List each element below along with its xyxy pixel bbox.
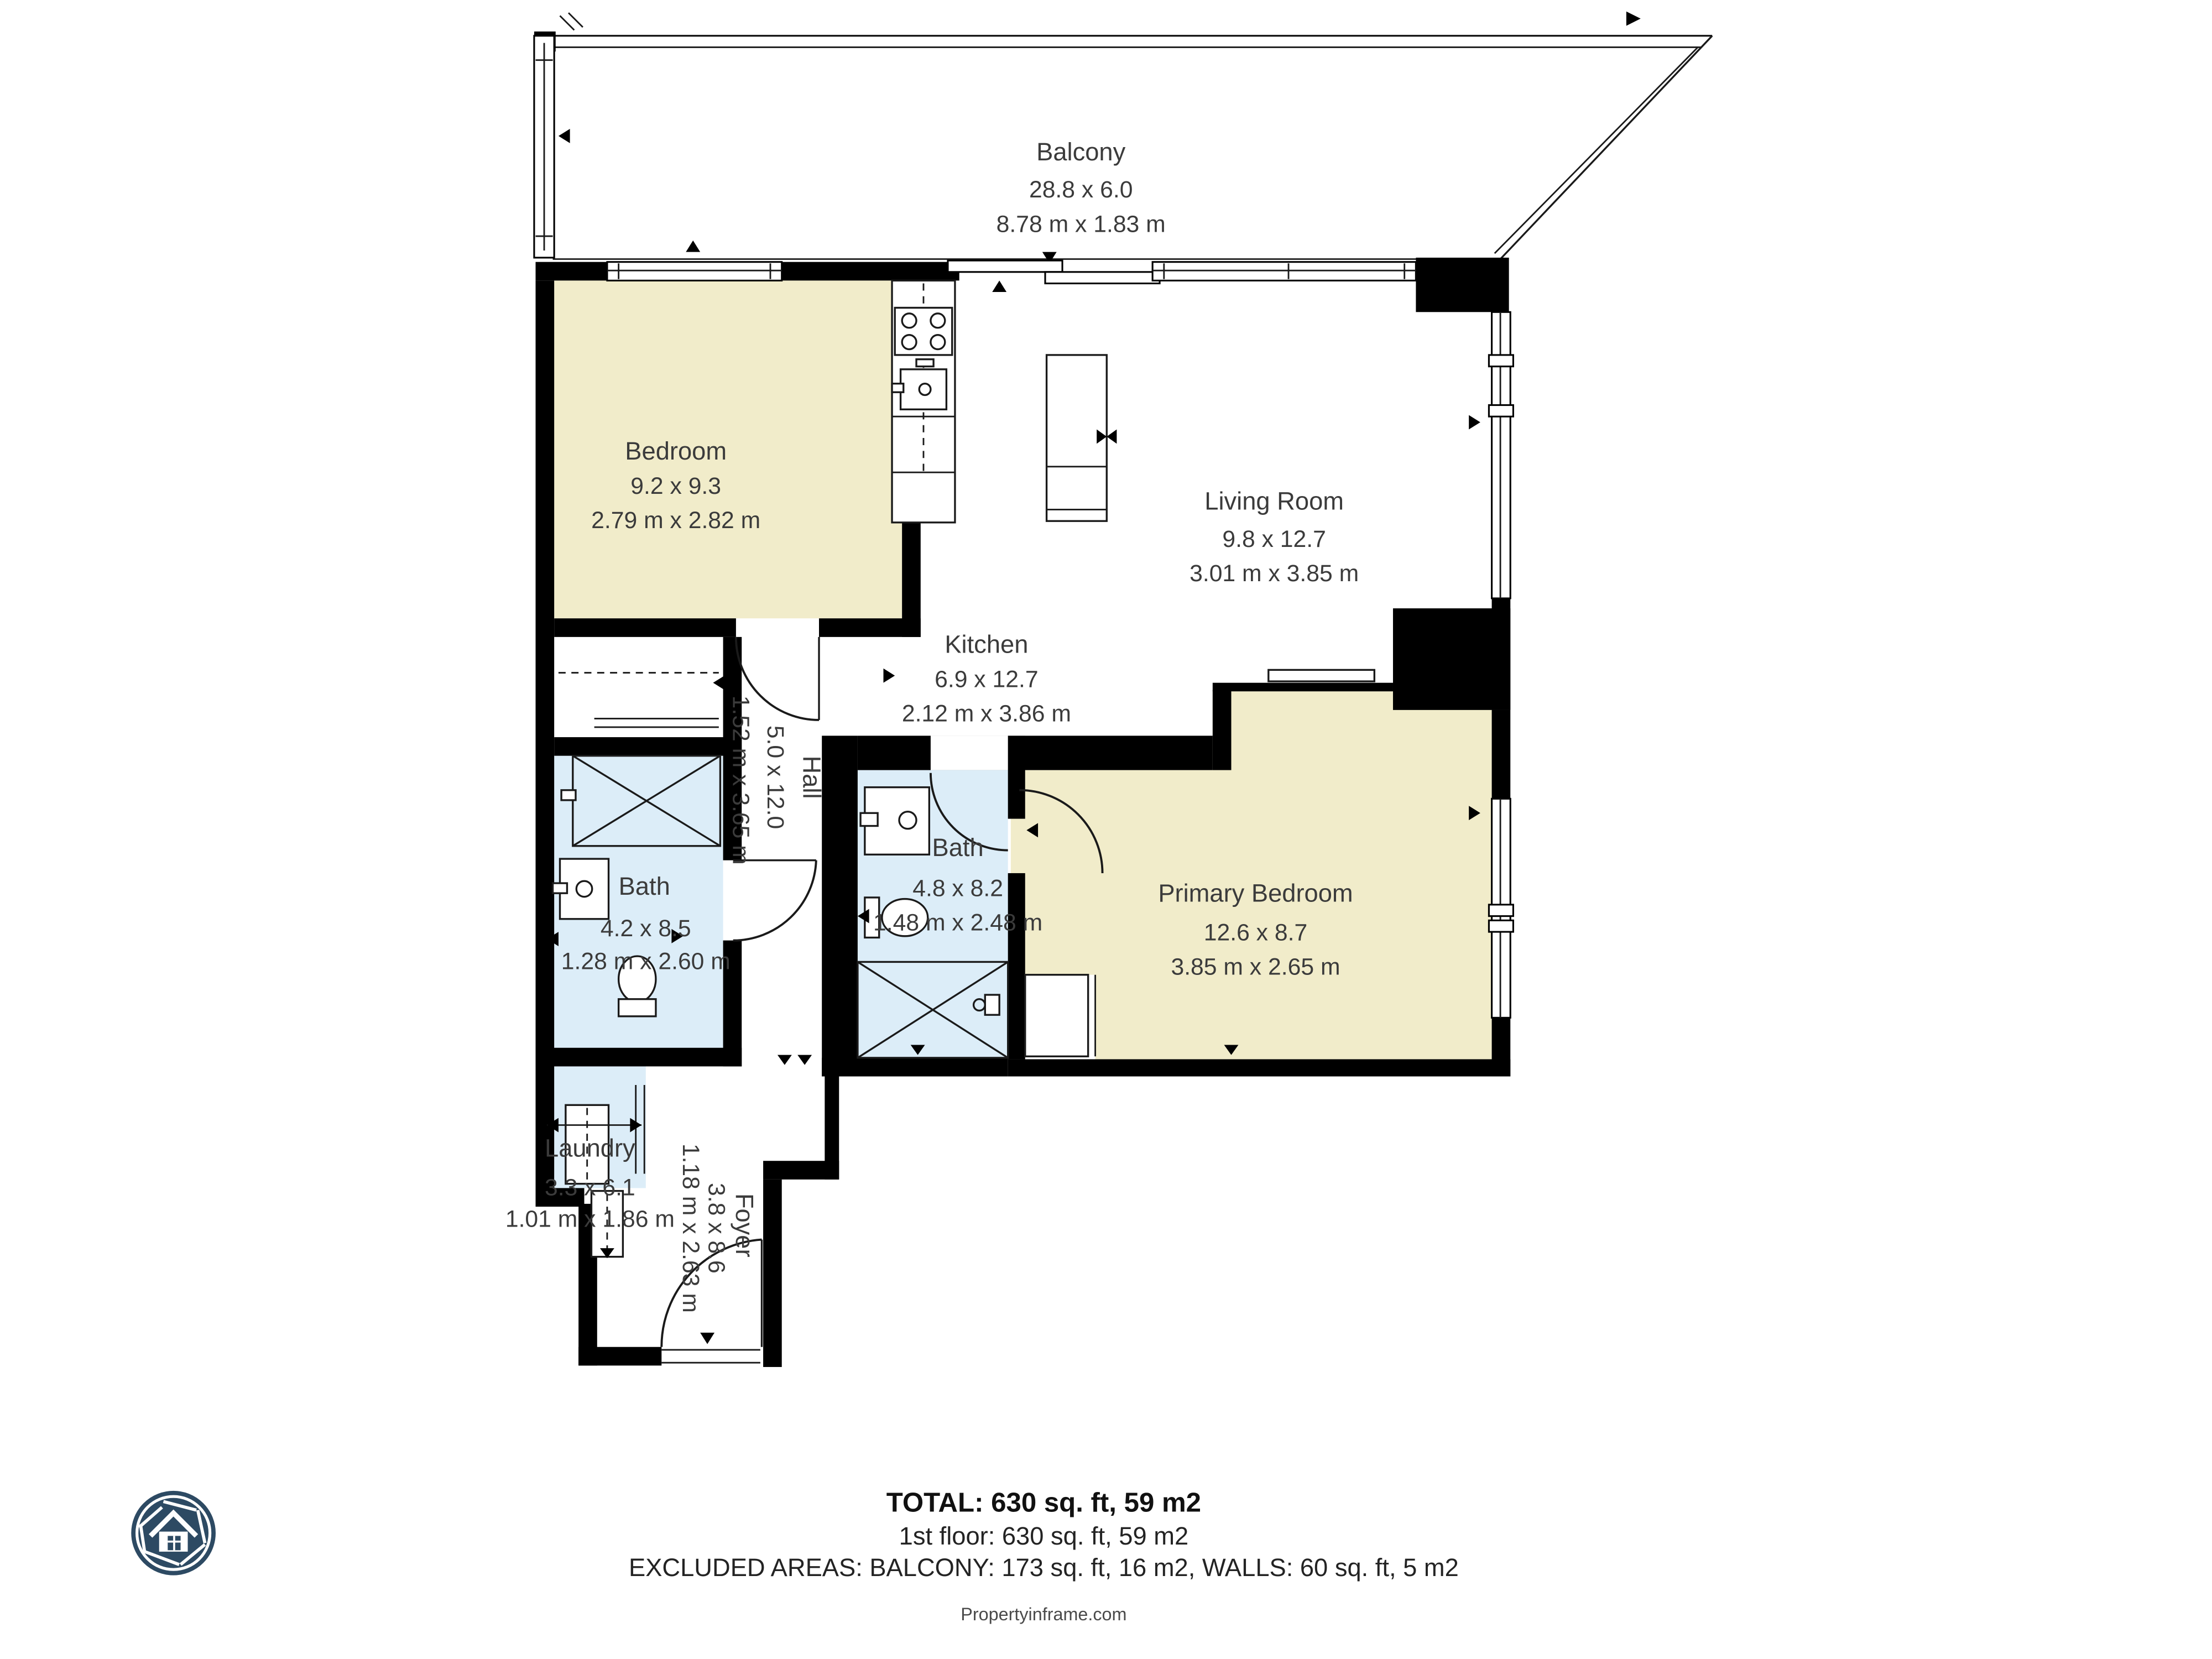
bath-left-door <box>733 860 816 941</box>
propertyinframe-logo-icon <box>133 1493 213 1573</box>
living-right-window <box>1469 312 1513 598</box>
svg-text:3.3 x 6.1: 3.3 x 6.1 <box>545 1174 635 1201</box>
total-area-text: TOTAL: 630 sq. ft, 59 m2 <box>886 1487 1201 1517</box>
room-bedroom-floor <box>554 280 902 618</box>
svg-text:Kitchen: Kitchen <box>945 630 1028 658</box>
svg-text:1.01 m x 1.86 m: 1.01 m x 1.86 m <box>505 1206 675 1232</box>
svg-text:1.48 m x 2.48 m: 1.48 m x 2.48 m <box>873 909 1042 936</box>
arrow-icon <box>883 669 895 683</box>
arrow-icon <box>1626 12 1641 26</box>
floorplan-page: Balcony 28.8 x 6.0 8.78 m x 1.83 m Bedro… <box>0 0 2212 1659</box>
svg-text:12.6 x 8.7: 12.6 x 8.7 <box>1204 920 1308 946</box>
svg-text:9.8 x 12.7: 9.8 x 12.7 <box>1222 526 1326 552</box>
svg-text:2.79 m x 2.82 m: 2.79 m x 2.82 m <box>591 507 760 534</box>
svg-text:28.8 x 6.0: 28.8 x 6.0 <box>1029 176 1133 203</box>
balcony-window <box>534 36 554 258</box>
svg-text:4.8 x 8.2: 4.8 x 8.2 <box>912 875 1003 901</box>
svg-text:1.18 m x 2.63 m: 1.18 m x 2.63 m <box>677 1144 704 1313</box>
svg-text:4.2 x 8.5: 4.2 x 8.5 <box>601 915 691 942</box>
svg-text:3.85 m x 2.65 m: 3.85 m x 2.65 m <box>1171 954 1340 980</box>
svg-text:Bedroom: Bedroom <box>625 437 727 465</box>
room-label-hall: Hall 5.0 x 12.0 1.52 m x 3.65 m <box>728 696 826 865</box>
arrow-icon <box>797 1055 812 1065</box>
excluded-areas-text: EXCLUDED AREAS: BALCONY: 173 sq. ft, 16 … <box>629 1553 1459 1582</box>
arrow-icon <box>713 676 724 690</box>
ledge-shelf <box>1269 670 1375 681</box>
arrow-icon <box>559 129 570 143</box>
svg-text:Balcony: Balcony <box>1036 138 1125 166</box>
room-label-foyer: Foyer 3.8 x 8.6 1.18 m x 2.63 m <box>677 1144 759 1313</box>
svg-text:8.78 m x 1.83 m: 8.78 m x 1.83 m <box>997 211 1166 237</box>
svg-text:2.12 m x 3.86 m: 2.12 m x 3.86 m <box>902 701 1071 727</box>
svg-text:Bath: Bath <box>619 872 670 900</box>
svg-text:Living Room: Living Room <box>1204 487 1344 515</box>
vanity-sink-icon <box>553 859 609 919</box>
living-top-window <box>1152 262 1416 281</box>
svg-text:Bath: Bath <box>932 833 984 862</box>
svg-text:3.01 m x 3.85 m: 3.01 m x 3.85 m <box>1190 560 1359 587</box>
bath-main-door-gap <box>931 735 1008 770</box>
arrow-icon <box>686 241 700 252</box>
summary-block: TOTAL: 630 sq. ft, 59 m2 1st floor: 630 … <box>629 1487 1459 1624</box>
room-label-laundry: Laundry 3.3 x 6.1 1.01 m x 1.86 m <box>505 1134 675 1232</box>
kitchen-balcony-slider <box>948 260 1160 292</box>
hall-closet <box>559 673 724 727</box>
svg-text:5.0 x 12.0: 5.0 x 12.0 <box>762 726 789 829</box>
svg-text:Foyer: Foyer <box>731 1193 759 1258</box>
room-label-living-room: Living Room 9.8 x 12.7 3.01 m x 3.85 m <box>1190 487 1359 586</box>
svg-text:6.9 x 12.7: 6.9 x 12.7 <box>935 666 1039 692</box>
watermark-text: Propertyinframe.com <box>961 1604 1126 1624</box>
floor-area-text: 1st floor: 630 sq. ft, 59 m2 <box>899 1522 1189 1550</box>
svg-text:9.2 x 9.3: 9.2 x 9.3 <box>630 473 721 499</box>
svg-text:Hall: Hall <box>798 756 826 799</box>
arrow-icon <box>778 1055 792 1065</box>
kitchen-sink-icon <box>892 369 946 409</box>
svg-text:Primary Bedroom: Primary Bedroom <box>1158 879 1353 907</box>
svg-text:1.28 m x 2.60 m: 1.28 m x 2.60 m <box>561 948 731 974</box>
svg-text:1.52 m x 3.65 m: 1.52 m x 3.65 m <box>728 696 754 865</box>
kitchen-island <box>1047 355 1117 521</box>
vanity-sink-icon <box>860 787 929 855</box>
primary-closet <box>1025 975 1095 1057</box>
svg-text:3.8 x 8.6: 3.8 x 8.6 <box>703 1183 730 1274</box>
svg-text:Laundry: Laundry <box>545 1134 635 1162</box>
room-label-balcony: Balcony 28.8 x 6.0 8.78 m x 1.83 m <box>997 138 1166 237</box>
floorplan-canvas: Balcony 28.8 x 6.0 8.78 m x 1.83 m Bedro… <box>0 0 2212 1659</box>
bedroom-window <box>607 262 782 281</box>
room-label-kitchen: Kitchen 6.9 x 12.7 2.12 m x 3.86 m <box>902 630 1071 727</box>
